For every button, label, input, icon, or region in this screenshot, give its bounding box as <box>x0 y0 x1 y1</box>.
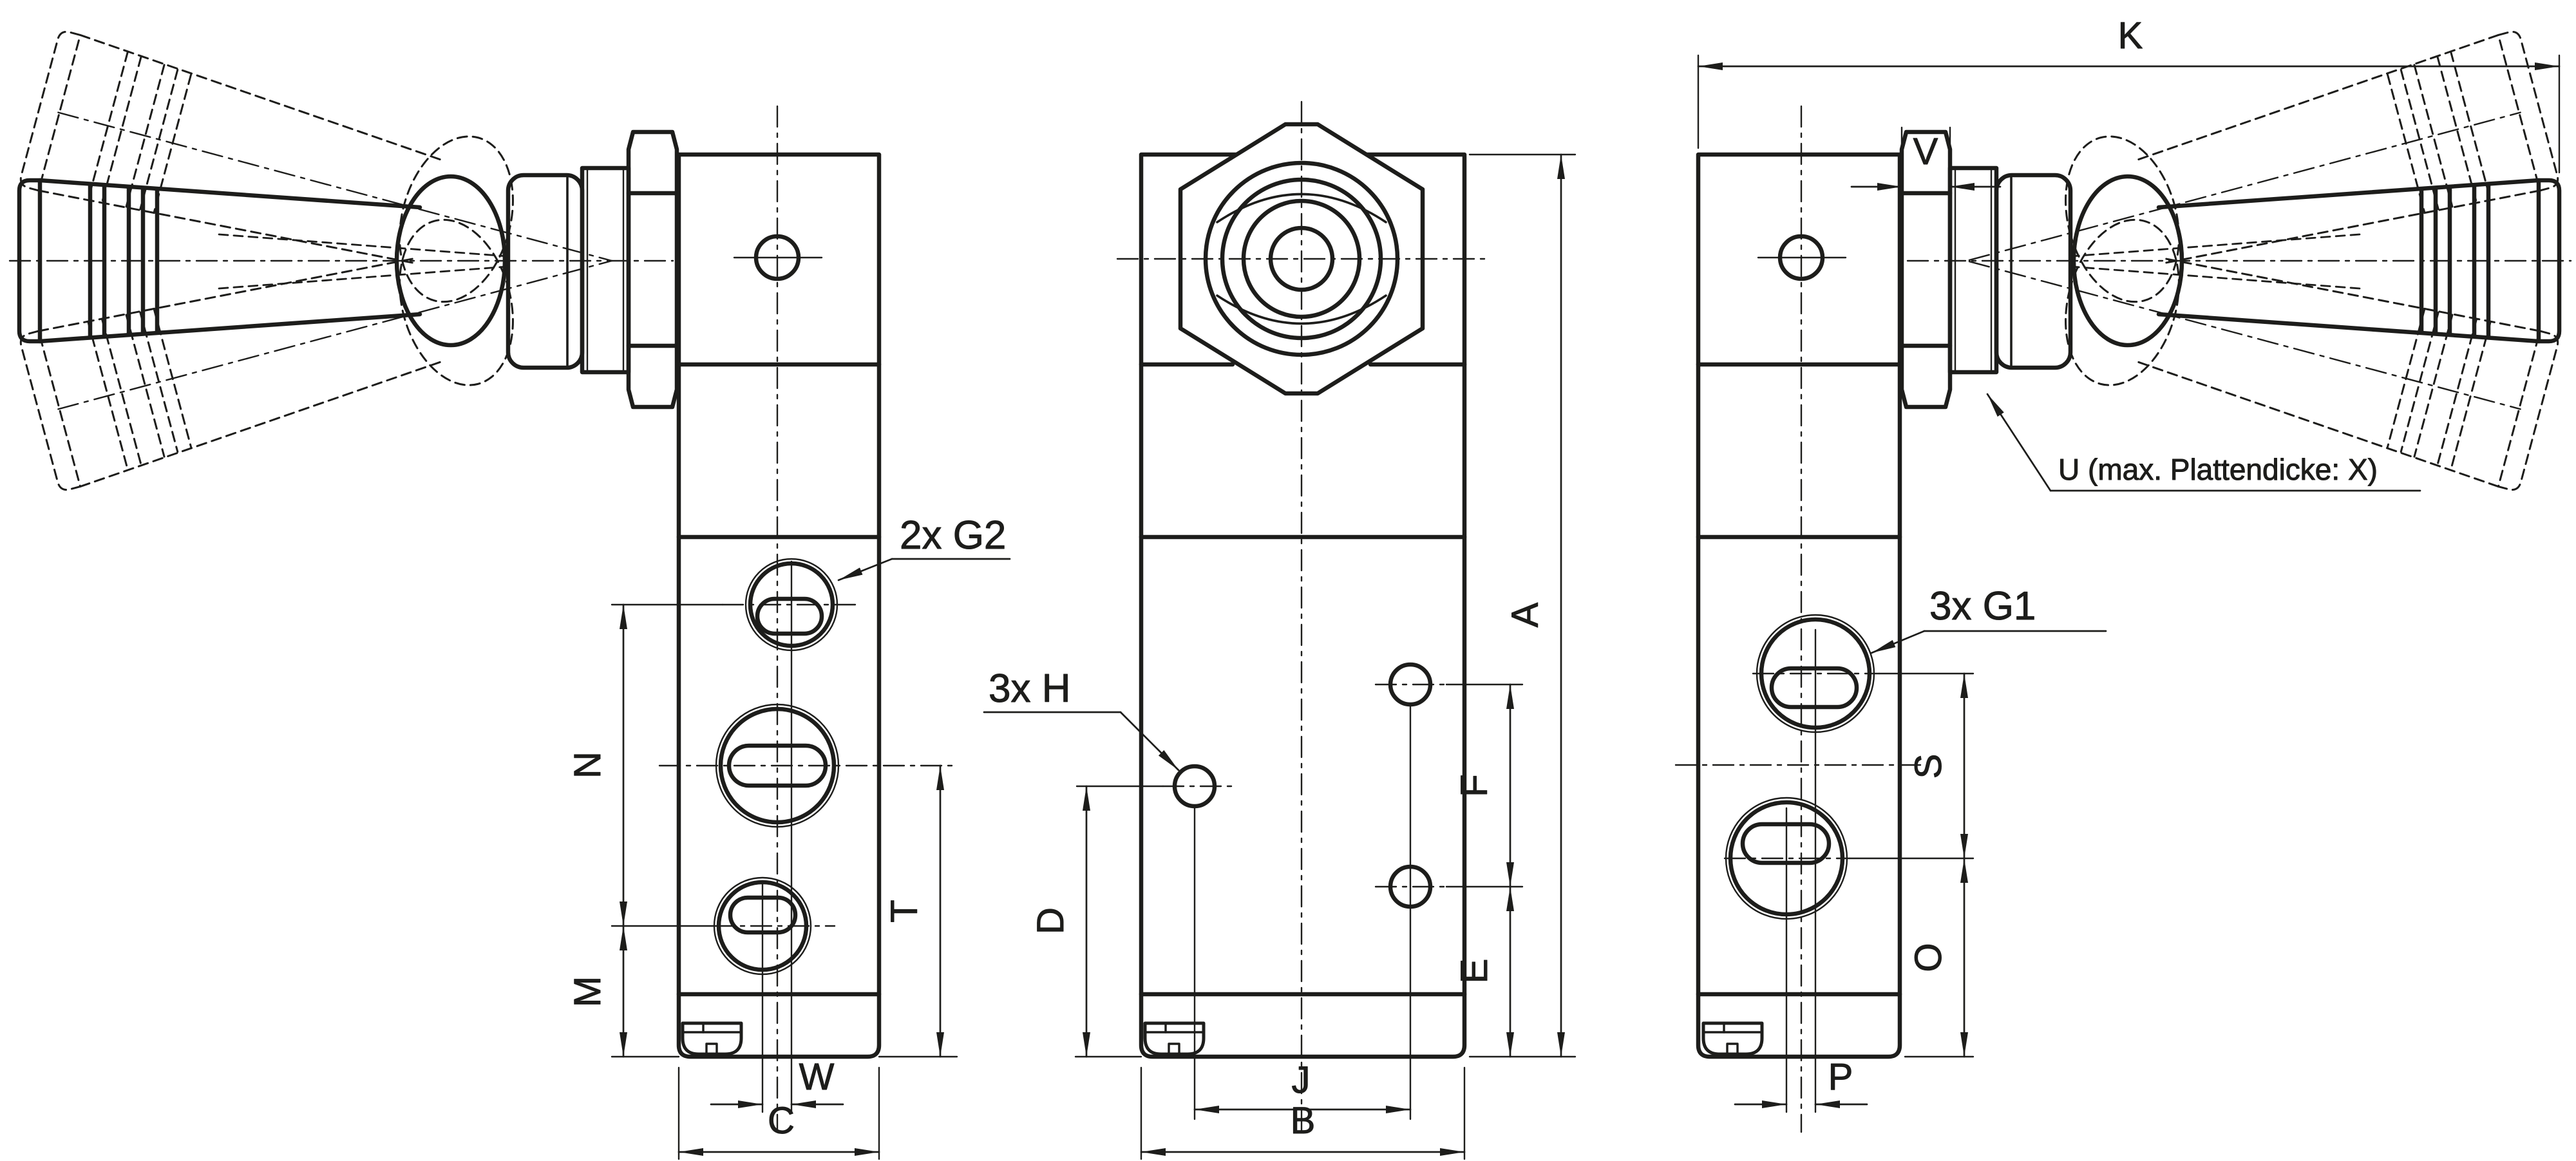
dim-label-O: O <box>1908 943 1949 972</box>
dim-label-V: V <box>1913 131 1938 173</box>
dim-label-T: T <box>884 900 925 922</box>
dim-label-J: J <box>1292 1059 1311 1101</box>
panel-thickness-annotation: U (max. Plattendicke: X) <box>1987 394 2420 491</box>
ports-g1-label: 3x G1 <box>1929 584 2036 628</box>
dim-label-M: M <box>567 976 609 1007</box>
dim-label-F: F <box>1454 774 1495 797</box>
mounting-clip <box>1703 1023 1762 1054</box>
left-port-annotation: 2x G2 <box>838 513 1010 580</box>
holes-h-label: 3x H <box>989 666 1070 711</box>
left-body <box>679 106 879 1132</box>
dim-label-W: W <box>799 1056 835 1098</box>
panel-nut-assembly <box>508 132 677 407</box>
technical-drawing-page: N M T W C 2x G2 <box>0 0 2576 1161</box>
dim-label-B: B <box>1291 1100 1316 1142</box>
panel-nut-assembly <box>1902 132 2070 407</box>
right-ports <box>1676 615 1973 1112</box>
dim-label-E: E <box>1454 959 1495 984</box>
front-lever-nut <box>1117 102 1487 1133</box>
dim-label-P: P <box>1828 1056 1853 1098</box>
dim-label-D: D <box>1030 907 1072 934</box>
front-dimensions: D F E A J B <box>1030 155 1575 1159</box>
left-view: N M T W C 2x G2 <box>10 26 1010 1159</box>
dim-label-C: C <box>768 1100 795 1142</box>
left-lever <box>10 26 677 495</box>
dim-label-A: A <box>1504 602 1546 627</box>
front-hole-annotation: 3x H <box>984 666 1179 770</box>
left-ports <box>612 559 956 1112</box>
mounting-clip <box>683 1023 741 1054</box>
ports-g2-label: 2x G2 <box>900 513 1006 558</box>
dim-label-S: S <box>1908 754 1949 779</box>
dim-label-N: N <box>567 751 609 779</box>
dim-label-K: K <box>2118 15 2143 57</box>
right-port-annotation: 3x G1 <box>1871 584 2106 653</box>
panel-note-label: U (max. Plattendicke: X) <box>2058 453 2378 486</box>
valve-dimension-drawing: N M T W C 2x G2 <box>0 0 2576 1161</box>
front-view: D F E A J B 3x H <box>984 102 1575 1159</box>
right-lever <box>1902 26 2571 495</box>
right-body <box>1698 106 1900 1132</box>
right-view: S O P K V 3x G1 U (max. Plattendicke: X) <box>1676 15 2571 1132</box>
